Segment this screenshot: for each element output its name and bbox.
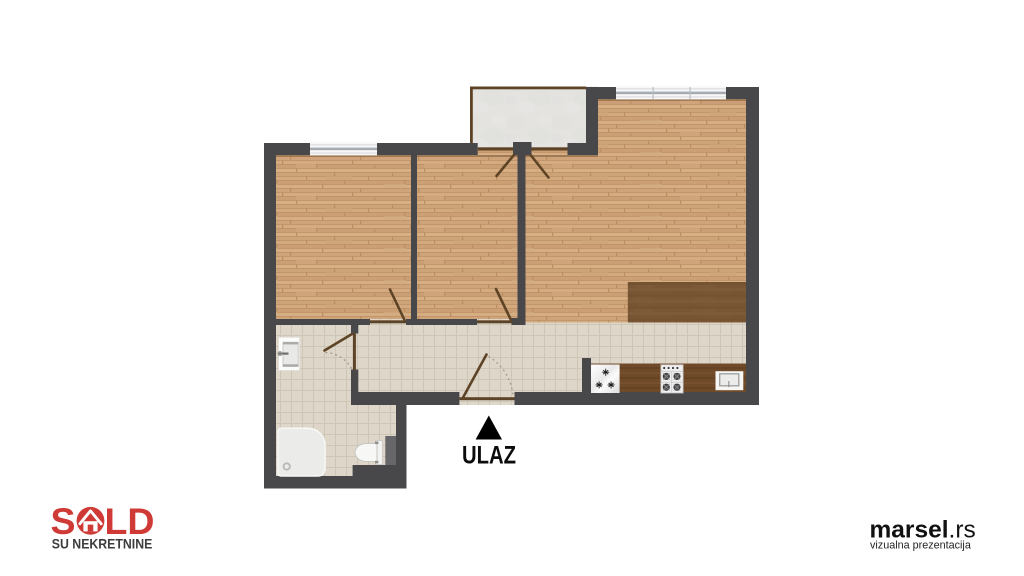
svg-text:ULAZ: ULAZ <box>462 442 516 470</box>
svg-text:SU NEKRETNINE: SU NEKRETNINE <box>52 536 153 551</box>
svg-text:vizualna prezentacija: vizualna prezentacija <box>870 540 971 552</box>
